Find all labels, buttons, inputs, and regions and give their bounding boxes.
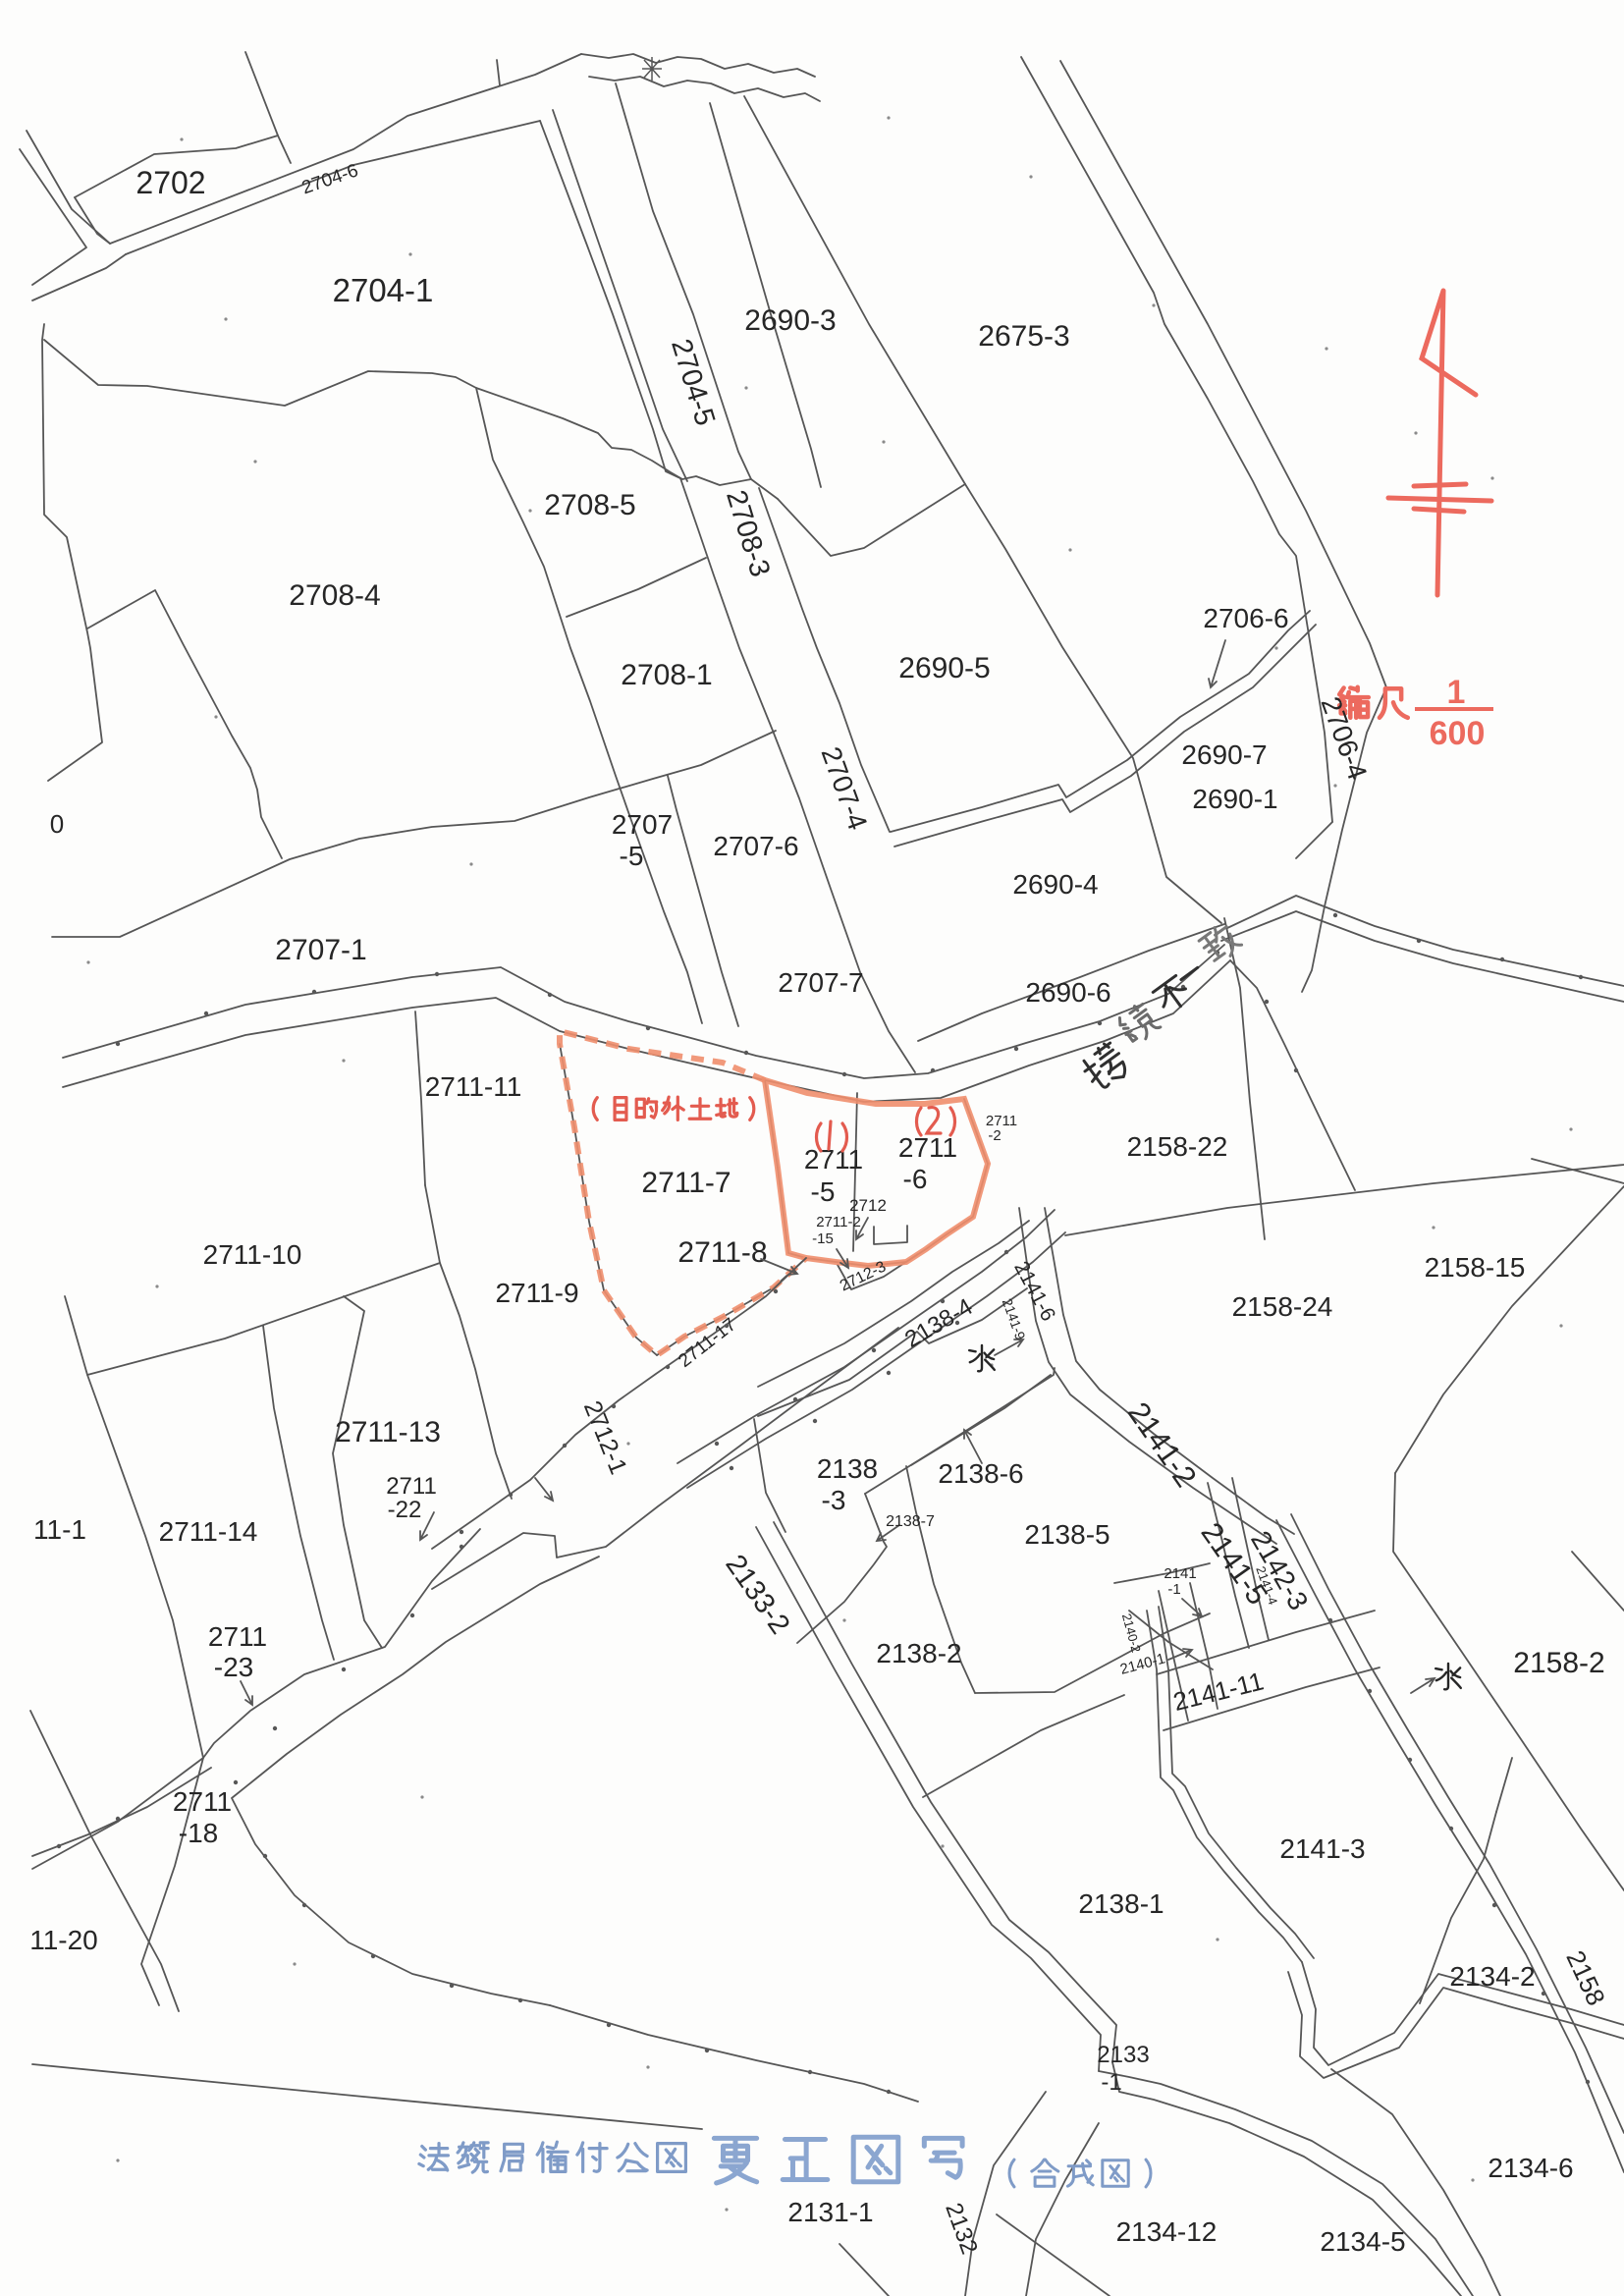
svg-text:2712: 2712 (849, 1196, 887, 1215)
svg-text:2138-5: 2138-5 (1024, 1519, 1110, 1550)
svg-text:2711-7: 2711-7 (641, 1167, 731, 1199)
svg-text:2707-1: 2707-1 (275, 934, 366, 966)
svg-text:2711-11: 2711-11 (425, 1071, 522, 1102)
svg-text:2711: 2711 (386, 1473, 437, 1500)
svg-text:2704-1: 2704-1 (333, 272, 434, 308)
svg-text:2134-2: 2134-2 (1449, 1961, 1535, 1992)
svg-text:2708-5: 2708-5 (544, 489, 635, 521)
svg-text:-15: -15 (812, 1230, 834, 1247)
svg-text:-3: -3 (822, 1485, 846, 1515)
svg-text:-6: -6 (903, 1164, 928, 1194)
svg-text:2138-1: 2138-1 (1078, 1888, 1164, 1919)
svg-text:2141-3: 2141-3 (1279, 1833, 1365, 1864)
svg-text:2690-6: 2690-6 (1025, 977, 1110, 1008)
svg-text:2133: 2133 (1097, 2042, 1149, 2068)
svg-text:2138-6: 2138-6 (938, 1458, 1023, 1489)
svg-text:2134-6: 2134-6 (1488, 2153, 1573, 2183)
svg-text:2707: 2707 (612, 809, 673, 840)
svg-text:-22: -22 (388, 1497, 422, 1523)
svg-text:2131-1: 2131-1 (787, 2197, 873, 2227)
svg-text:2711-10: 2711-10 (203, 1239, 302, 1270)
svg-text:2711: 2711 (173, 1786, 232, 1817)
svg-text:-5: -5 (620, 841, 644, 871)
svg-text:2158-15: 2158-15 (1425, 1252, 1526, 1283)
svg-text:2706-6: 2706-6 (1203, 603, 1288, 633)
svg-text:2702: 2702 (135, 165, 205, 200)
svg-text:2708-4: 2708-4 (289, 579, 380, 612)
svg-text:2138-7: 2138-7 (886, 1513, 935, 1530)
svg-text:2711-9: 2711-9 (495, 1278, 578, 1308)
svg-text:2690-1: 2690-1 (1192, 784, 1277, 814)
svg-text:2690-5: 2690-5 (898, 652, 990, 684)
svg-text:-1: -1 (1167, 1581, 1180, 1598)
svg-text:2708-1: 2708-1 (621, 659, 712, 691)
svg-text:1: 1 (1447, 674, 1466, 711)
svg-text:11-20: 11-20 (29, 1925, 98, 1955)
svg-text:2707-6: 2707-6 (713, 831, 798, 861)
svg-text:2711-13: 2711-13 (335, 1416, 441, 1449)
svg-text:-5: -5 (811, 1176, 836, 1207)
svg-text:2690-4: 2690-4 (1012, 869, 1098, 900)
svg-text:2158-22: 2158-22 (1127, 1131, 1228, 1162)
svg-text:2141: 2141 (1164, 1565, 1196, 1582)
svg-text:2711-14: 2711-14 (159, 1516, 258, 1547)
svg-text:-18: -18 (179, 1818, 218, 1848)
svg-text:-2: -2 (988, 1127, 1001, 1144)
svg-text:2707-7: 2707-7 (778, 967, 863, 998)
svg-text:2134-5: 2134-5 (1320, 2226, 1405, 2257)
svg-text:0: 0 (50, 809, 64, 839)
svg-text:2675-3: 2675-3 (978, 320, 1069, 353)
svg-text:2711-2: 2711-2 (816, 1214, 861, 1230)
svg-text:2690-7: 2690-7 (1181, 739, 1267, 770)
svg-text:-1: -1 (1101, 2069, 1121, 2096)
svg-text:-23: -23 (214, 1652, 253, 1682)
svg-text:11-1: 11-1 (33, 1514, 86, 1545)
svg-text:2690-3: 2690-3 (744, 304, 836, 337)
svg-text:600: 600 (1430, 715, 1486, 752)
svg-text:2138-2: 2138-2 (876, 1638, 961, 1668)
svg-text:2134-12: 2134-12 (1116, 2216, 1218, 2247)
svg-text:2158-2: 2158-2 (1513, 1647, 1604, 1679)
svg-text:2158-24: 2158-24 (1232, 1291, 1333, 1322)
svg-text:2711-8: 2711-8 (677, 1236, 767, 1269)
svg-text:2711: 2711 (898, 1132, 957, 1163)
svg-text:2711: 2711 (804, 1144, 863, 1175)
svg-text:2711: 2711 (208, 1621, 267, 1652)
svg-text:2138: 2138 (817, 1453, 878, 1484)
